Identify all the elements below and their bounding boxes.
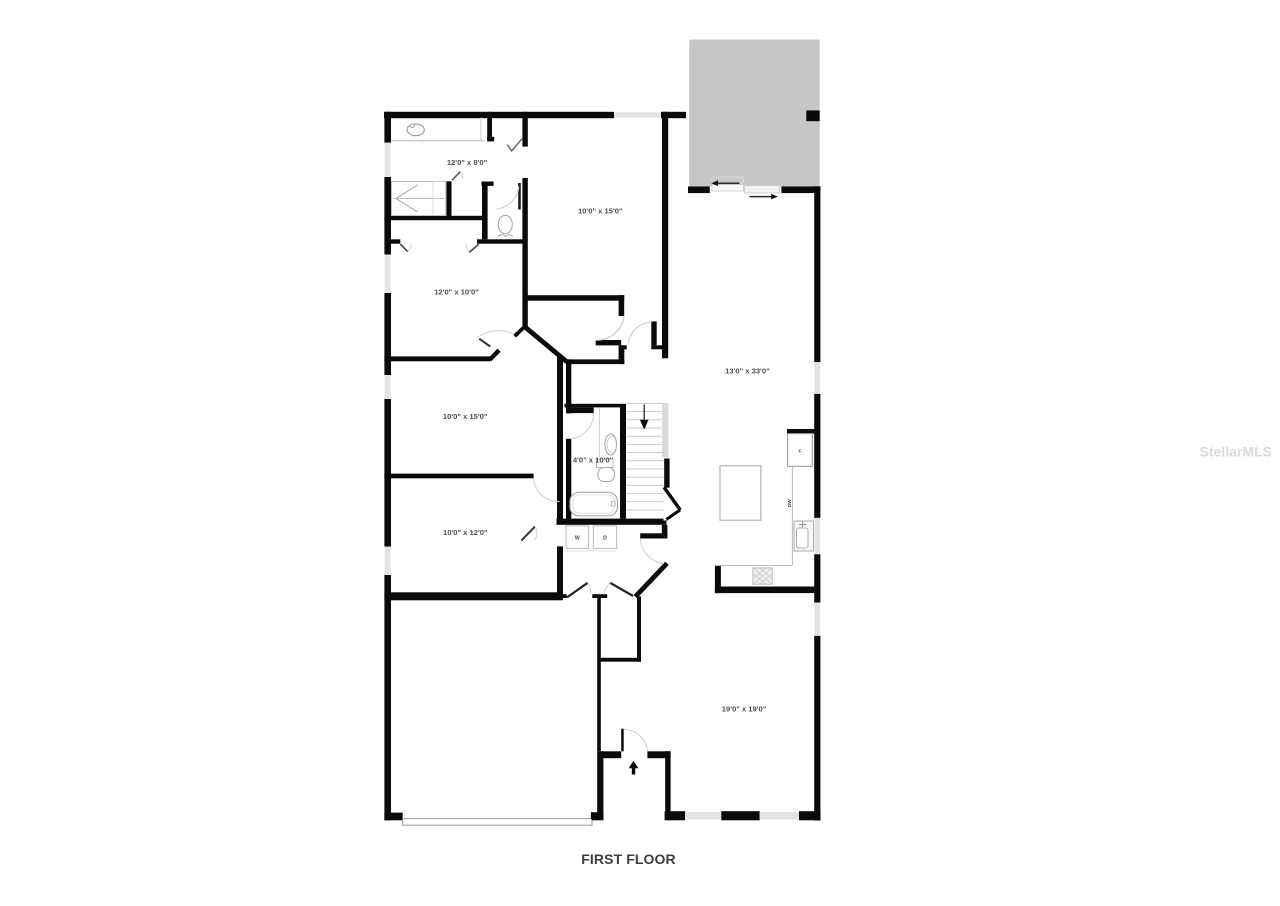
svg-text:10'0" x 15'0": 10'0" x 15'0": [443, 412, 488, 421]
svg-text:W: W: [575, 536, 580, 542]
svg-text:13'0" x 33'0": 13'0" x 33'0": [725, 366, 770, 375]
svg-text:DW: DW: [787, 499, 793, 508]
svg-text:StellarMLS: StellarMLS: [1200, 444, 1272, 460]
svg-text:19'0" x 19'0": 19'0" x 19'0": [722, 705, 767, 714]
svg-text:10'0" x 15'0": 10'0" x 15'0": [578, 206, 623, 215]
svg-text:D: D: [603, 536, 607, 542]
svg-text:10'0" x 12'0": 10'0" x 12'0": [443, 528, 488, 537]
svg-text:4'0" x 10'0": 4'0" x 10'0": [573, 456, 614, 465]
svg-text:12'0" x 8'0": 12'0" x 8'0": [447, 158, 488, 167]
svg-text:FIRST FLOOR: FIRST FLOOR: [581, 851, 675, 867]
svg-text:12'0" x 10'0": 12'0" x 10'0": [434, 288, 479, 297]
svg-text:F: F: [799, 449, 802, 455]
